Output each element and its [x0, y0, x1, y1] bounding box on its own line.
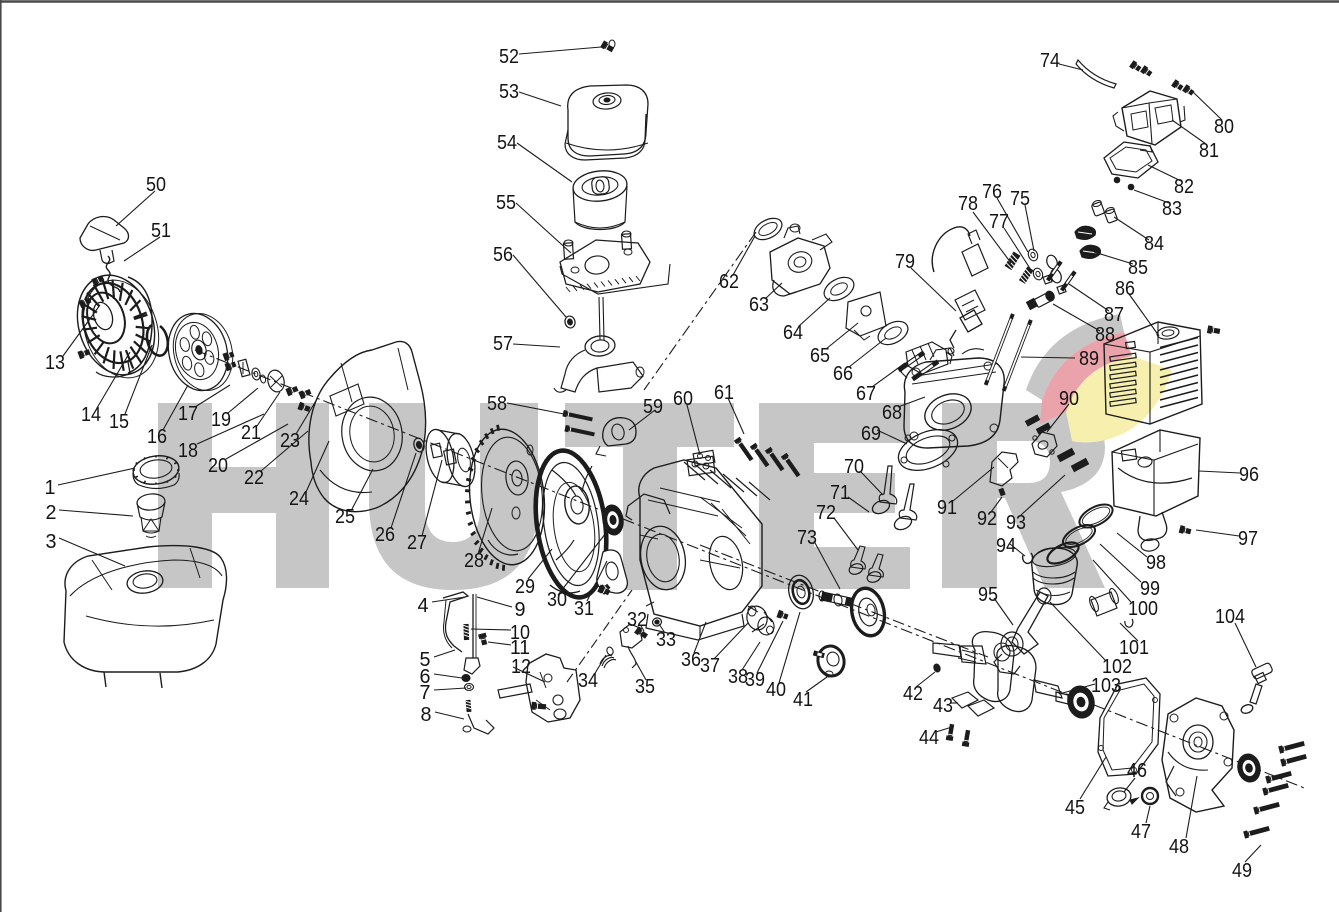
svg-text:55: 55 — [496, 192, 516, 214]
svg-text:73: 73 — [797, 527, 817, 549]
svg-text:76: 76 — [982, 181, 1002, 203]
svg-text:99: 99 — [1140, 578, 1160, 600]
svg-text:77: 77 — [989, 211, 1009, 233]
svg-text:49: 49 — [1232, 860, 1252, 882]
svg-text:39: 39 — [745, 669, 765, 691]
svg-text:63: 63 — [749, 294, 769, 316]
svg-text:17: 17 — [178, 403, 198, 425]
svg-text:71: 71 — [830, 482, 850, 504]
svg-text:53: 53 — [499, 81, 519, 103]
svg-text:81: 81 — [1199, 140, 1219, 162]
svg-text:50: 50 — [146, 174, 166, 196]
svg-text:41: 41 — [793, 689, 813, 711]
svg-text:15: 15 — [109, 411, 129, 433]
svg-text:48: 48 — [1169, 836, 1189, 858]
svg-text:54: 54 — [497, 132, 517, 154]
svg-text:18: 18 — [178, 440, 198, 462]
svg-text:89: 89 — [1079, 348, 1099, 370]
svg-text:96: 96 — [1239, 464, 1259, 486]
svg-text:51: 51 — [151, 220, 171, 242]
svg-text:86: 86 — [1115, 278, 1135, 300]
svg-text:62: 62 — [719, 271, 739, 293]
svg-text:1: 1 — [45, 477, 56, 499]
svg-text:13: 13 — [45, 352, 65, 374]
svg-text:56: 56 — [493, 244, 513, 266]
svg-text:30: 30 — [547, 589, 567, 611]
svg-text:37: 37 — [700, 655, 720, 677]
svg-text:4: 4 — [418, 595, 429, 617]
svg-text:36: 36 — [681, 649, 701, 671]
svg-text:103: 103 — [1091, 675, 1121, 697]
svg-text:44: 44 — [919, 727, 939, 749]
svg-text:85: 85 — [1128, 257, 1148, 279]
svg-text:58: 58 — [487, 393, 507, 415]
svg-text:9: 9 — [515, 599, 526, 621]
svg-text:70: 70 — [844, 456, 864, 478]
svg-text:2: 2 — [46, 502, 57, 524]
svg-text:84: 84 — [1144, 233, 1164, 255]
svg-text:7: 7 — [420, 682, 431, 704]
svg-text:57: 57 — [493, 333, 513, 355]
svg-text:98: 98 — [1146, 552, 1166, 574]
svg-text:3: 3 — [46, 531, 57, 553]
svg-text:46: 46 — [1127, 760, 1147, 782]
svg-text:78: 78 — [958, 193, 978, 215]
svg-text:25: 25 — [335, 506, 355, 528]
svg-text:47: 47 — [1131, 821, 1151, 843]
svg-text:59: 59 — [643, 396, 663, 418]
svg-text:43: 43 — [933, 695, 953, 717]
svg-text:100: 100 — [1128, 598, 1158, 620]
svg-text:42: 42 — [903, 683, 923, 705]
svg-text:8: 8 — [421, 704, 432, 726]
svg-text:29: 29 — [515, 576, 535, 598]
svg-text:31: 31 — [574, 598, 594, 620]
svg-text:72: 72 — [816, 502, 836, 524]
svg-text:95: 95 — [978, 584, 998, 606]
svg-text:26: 26 — [375, 524, 395, 546]
svg-text:92: 92 — [977, 508, 997, 530]
svg-text:28: 28 — [464, 550, 484, 572]
svg-text:60: 60 — [673, 388, 693, 410]
svg-text:33: 33 — [656, 629, 676, 651]
svg-text:97: 97 — [1238, 528, 1258, 550]
svg-text:45: 45 — [1065, 797, 1085, 819]
svg-text:40: 40 — [766, 679, 786, 701]
svg-text:69: 69 — [861, 423, 881, 445]
svg-text:88: 88 — [1095, 324, 1115, 346]
svg-text:80: 80 — [1214, 116, 1234, 138]
svg-text:93: 93 — [1006, 512, 1026, 534]
svg-text:27: 27 — [407, 532, 427, 554]
svg-text:68: 68 — [882, 402, 902, 424]
svg-text:52: 52 — [499, 46, 519, 68]
svg-text:74: 74 — [1040, 50, 1060, 72]
svg-text:32: 32 — [627, 609, 647, 631]
svg-text:61: 61 — [714, 382, 734, 404]
svg-text:75: 75 — [1010, 188, 1030, 210]
svg-text:104: 104 — [1215, 606, 1245, 628]
svg-text:20: 20 — [208, 455, 228, 477]
svg-text:87: 87 — [1104, 304, 1124, 326]
svg-text:90: 90 — [1059, 388, 1079, 410]
